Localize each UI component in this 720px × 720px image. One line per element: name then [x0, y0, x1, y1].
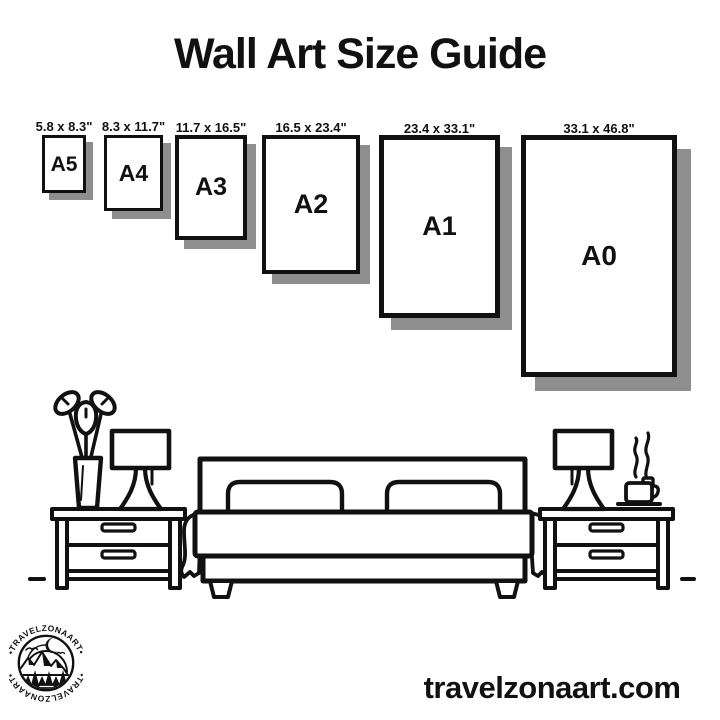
frame-size-name: A2 [294, 191, 329, 218]
table-lamp-left-icon [112, 431, 169, 509]
frame-dimension-label: 23.4 x 33.1" [404, 121, 475, 136]
size-frame-a4: 8.3 x 11.7"A4 [104, 135, 163, 211]
frame-dimension-label: 8.3 x 11.7" [102, 119, 165, 134]
brand-logo: •TRAVELZONAART• •TRAVELZONAART• [1, 618, 91, 708]
frame-size-name: A1 [422, 213, 457, 240]
size-frame-a3: 11.7 x 16.5"A3 [175, 135, 247, 240]
flower-vase-icon [51, 388, 119, 508]
size-frame-a5: 5.8 x 8.3"A5 [42, 135, 86, 193]
coffee-cup-icon [618, 433, 660, 504]
bed-pillow-left [228, 482, 342, 513]
frame-dimension-label: 33.1 x 46.8" [563, 121, 634, 136]
steam-icon [635, 438, 637, 477]
steam-icon [646, 433, 649, 479]
size-frame-a2: 16.5 x 23.4"A2 [262, 135, 360, 274]
frame-size-name: A3 [195, 175, 227, 200]
bed-leg-right [496, 581, 518, 597]
frame-size-name: A4 [119, 162, 148, 185]
frame-dimension-label: 5.8 x 8.3" [36, 119, 93, 134]
page-title: Wall Art Size Guide [0, 30, 720, 79]
bed-base [203, 556, 525, 581]
table-lamp-right-icon [555, 431, 612, 509]
frame-size-name: A0 [581, 242, 617, 270]
bed-pillow-right [387, 482, 500, 513]
frame-dimension-label: 16.5 x 23.4" [275, 120, 346, 135]
nightstand-left-icon [52, 509, 185, 588]
size-frame-a1: 23.4 x 33.1"A1 [379, 135, 500, 318]
frame-dimension-label: 11.7 x 16.5" [176, 120, 247, 135]
nightstand-right-icon [540, 509, 673, 588]
frame-size-name: A5 [51, 154, 78, 175]
website-url: travelzonaart.com [402, 670, 702, 706]
bed-mattress [195, 512, 532, 556]
bedroom-illustration [0, 378, 720, 613]
bed-icon [181, 459, 551, 597]
size-frame-a0: 33.1 x 46.8"A0 [521, 135, 677, 377]
bed-leg-left [210, 581, 232, 597]
